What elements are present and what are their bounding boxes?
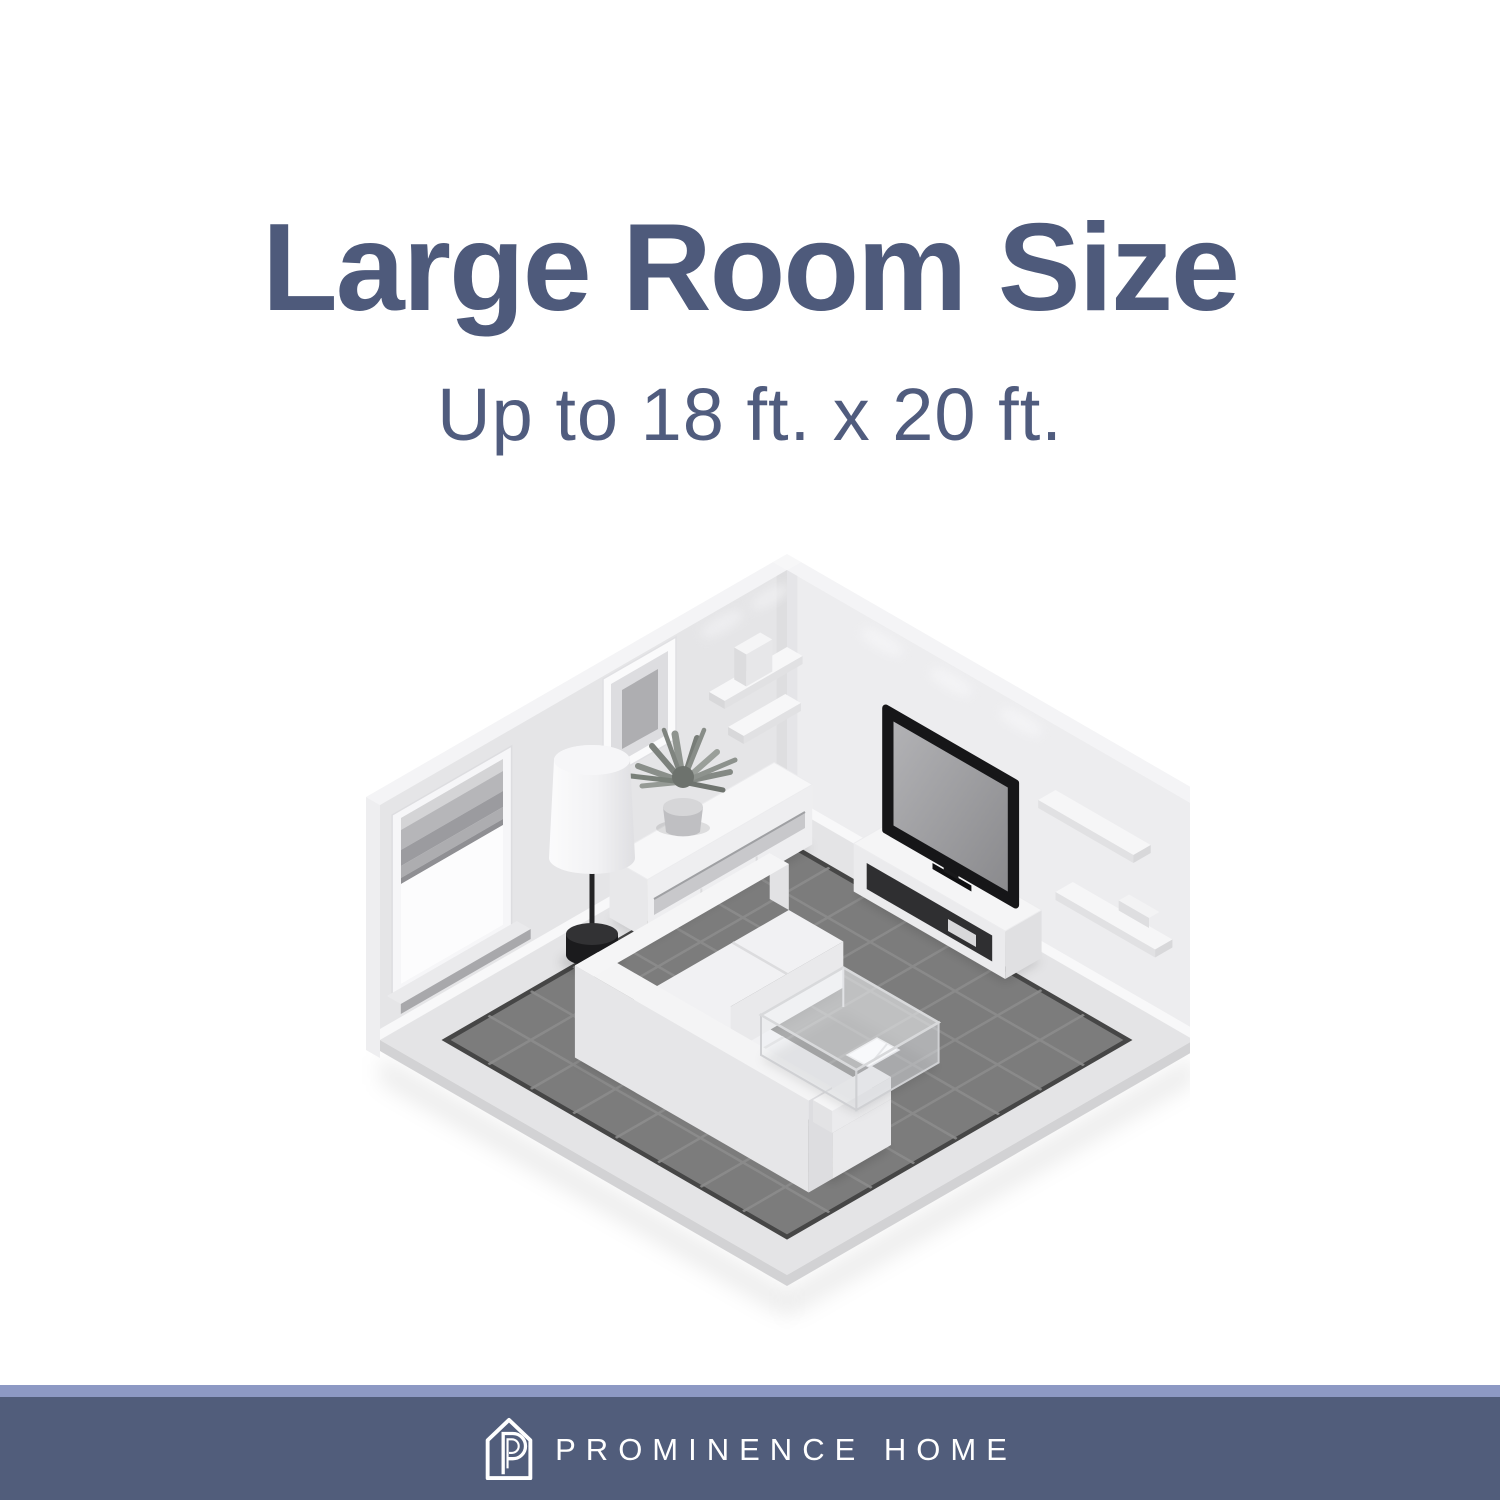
marketing-image: Large Room Size Up to 18 ft. x 20 ft. (0, 0, 1500, 1500)
page-subtitle: Up to 18 ft. x 20 ft. (0, 378, 1500, 452)
isometric-room-illustration (350, 510, 1190, 1355)
footer-accent-strip (0, 1385, 1500, 1397)
page-title: Large Room Size (0, 206, 1500, 330)
footer: PROMINENCE HOME (0, 1385, 1500, 1500)
brand-name: PROMINENCE HOME (555, 1434, 1017, 1465)
footer-band: PROMINENCE HOME (0, 1397, 1500, 1500)
prominence-home-house-p-icon (483, 1416, 535, 1482)
